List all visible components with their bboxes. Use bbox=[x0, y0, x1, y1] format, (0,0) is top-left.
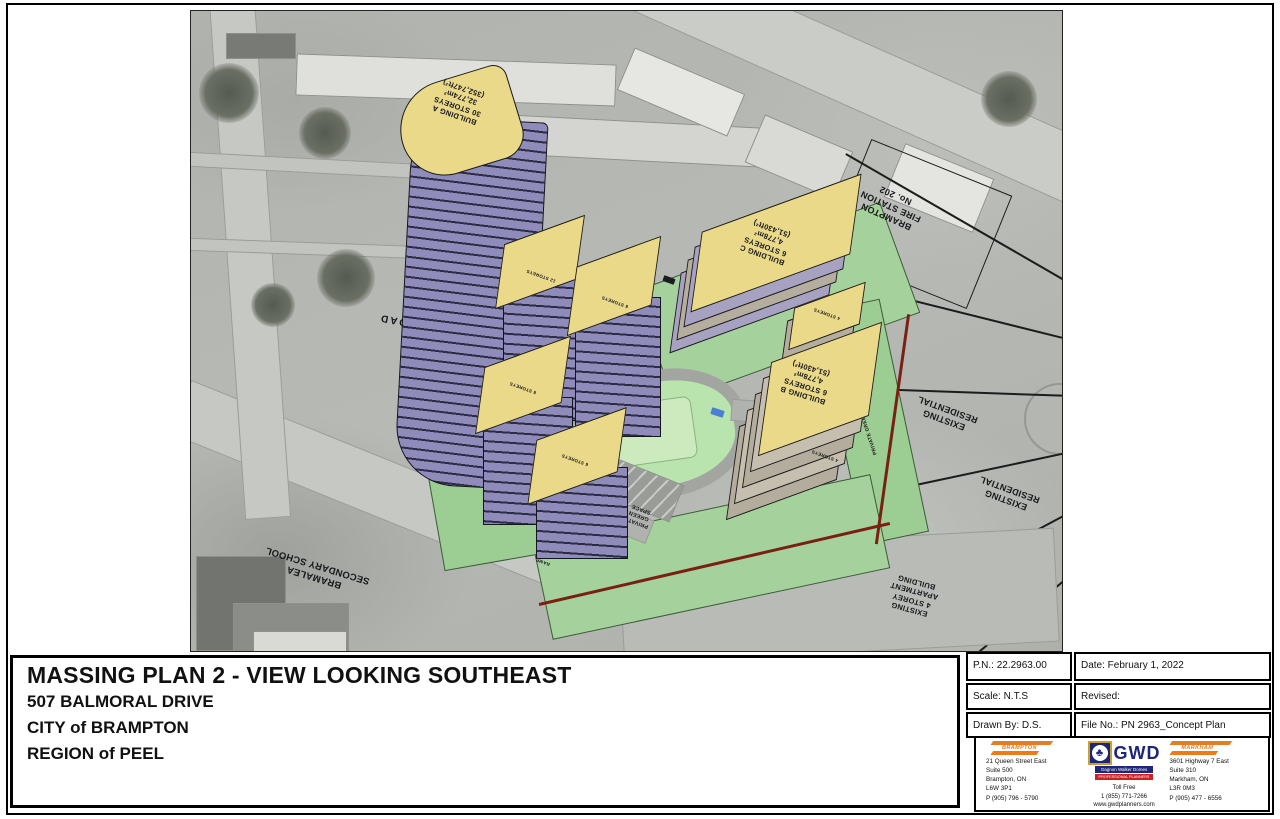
massing-plan-view: BRAMALEA ROAD BALMORAL DRIVE BRAMALEA SE… bbox=[190, 10, 1063, 652]
logo-stripe-icon bbox=[991, 751, 1039, 755]
gwd-logo: ♣ GWD bbox=[1079, 741, 1170, 765]
project-region: REGION of PEEL bbox=[27, 741, 943, 767]
markham-office-address: 3601 Highway 7 East Suite 310 Markham, O… bbox=[1169, 757, 1264, 803]
consultant-block: BRAMPTON 21 Queen Street East Suite 500 … bbox=[974, 736, 1270, 812]
markham-logo-text: MARKHAM bbox=[1171, 745, 1231, 751]
logo-stripe-icon bbox=[1170, 751, 1218, 755]
brampton-office-address: 21 Queen Street East Suite 500 Brampton,… bbox=[986, 757, 1079, 803]
drawing-sheet: BRAMALEA ROAD BALMORAL DRIVE BRAMALEA SE… bbox=[0, 0, 1280, 819]
context-roof bbox=[226, 33, 296, 59]
project-address: 507 BALMORAL DRIVE bbox=[27, 689, 943, 715]
gwd-emblem-icon: ♣ bbox=[1092, 745, 1108, 761]
info-cell-pn: P.N.: 22.2963.00 bbox=[966, 652, 1072, 681]
info-cell-drawn-by: Drawn By: D.S. bbox=[966, 712, 1072, 738]
markham-logo: MARKHAM bbox=[1171, 741, 1231, 754]
gwd-tagline: PROFESSIONAL PLANNERS bbox=[1095, 774, 1153, 780]
tree bbox=[317, 249, 375, 307]
markham-office: MARKHAM 3601 Highway 7 East Suite 310 Ma… bbox=[1169, 741, 1264, 807]
info-cell-file-no: File No.: PN 2963_Concept Plan bbox=[1074, 712, 1271, 738]
title-block: MASSING PLAN 2 - VIEW LOOKING SOUTHEAST … bbox=[10, 655, 960, 808]
gwd-contact: Toll Free 1 (855) 771-7266 www.gwdplanne… bbox=[1079, 784, 1170, 810]
logo-stripe-icon bbox=[991, 741, 1053, 745]
info-cell-revised: Revised: bbox=[1074, 683, 1271, 710]
drawing-title: MASSING PLAN 2 - VIEW LOOKING SOUTHEAST bbox=[27, 662, 943, 689]
school-roof bbox=[253, 631, 347, 652]
tree bbox=[199, 63, 259, 123]
logo-stripe-icon bbox=[1170, 741, 1232, 745]
gwd-firm: ♣ GWD Gagnon Walker Domes PROFESSIONAL P… bbox=[1079, 741, 1170, 807]
brampton-logo: BRAMPTON bbox=[992, 741, 1052, 754]
label-existing-residential: EXISTING RESIDENTIAL bbox=[952, 465, 1063, 524]
tree bbox=[251, 283, 295, 327]
info-cell-date: Date: February 1, 2022 bbox=[1074, 652, 1271, 681]
tree bbox=[299, 107, 351, 159]
gwd-subtitle: Gagnon Walker Domes bbox=[1095, 766, 1153, 773]
info-cell-scale: Scale: N.T.S bbox=[966, 683, 1072, 710]
project-city: CITY of BRAMPTON bbox=[27, 715, 943, 741]
brampton-office: BRAMPTON 21 Queen Street East Suite 500 … bbox=[980, 741, 1079, 807]
brampton-logo-text: BRAMPTON bbox=[992, 745, 1052, 751]
gwd-emblem-box: ♣ bbox=[1088, 741, 1112, 765]
gwd-name: GWD bbox=[1114, 743, 1161, 764]
tree bbox=[981, 71, 1037, 127]
